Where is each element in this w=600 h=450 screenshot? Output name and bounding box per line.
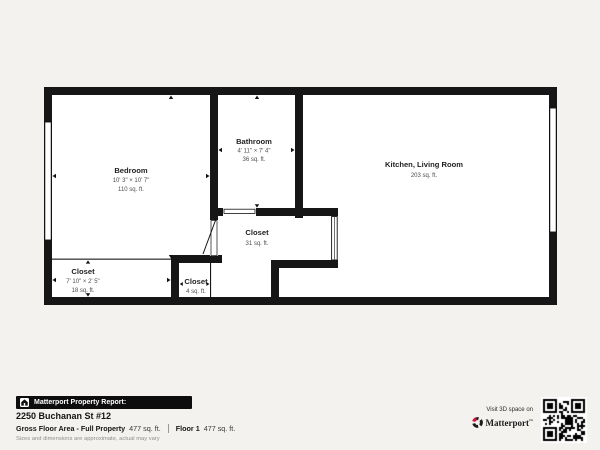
property-address: 2250 Buchanan St #12 [16, 411, 111, 421]
qr-code [541, 397, 587, 443]
report-badge: Matterport Property Report: [16, 396, 192, 409]
disclaimer-text: Sizes and dimensions are approximate, ac… [16, 436, 160, 442]
house-icon [20, 398, 29, 407]
brand-row: Matterport™ [440, 417, 533, 428]
window-left [45, 122, 51, 240]
svg-text:18 sq. ft.: 18 sq. ft. [71, 288, 94, 294]
window-right [550, 108, 556, 232]
svg-text:36 sq. ft.: 36 sq. ft. [242, 157, 265, 163]
svg-text:Closet: Closet [245, 228, 269, 237]
svg-text:7' 10" × 2' 5": 7' 10" × 2' 5" [66, 279, 99, 285]
svg-text:Closet: Closet [184, 277, 208, 286]
floor1-label: Floor 1 [176, 424, 200, 433]
svg-text:110 sq. ft.: 110 sq. ft. [118, 187, 144, 193]
stats-divider [168, 424, 169, 433]
room-label-bedroom: Bedroom 10' 3" × 10' 7" 110 sq. ft. [113, 166, 150, 193]
svg-text:Bathroom: Bathroom [236, 137, 272, 146]
visit-3d-text: Visit 3D space on [440, 407, 533, 413]
svg-text:10' 3" × 10' 7": 10' 3" × 10' 7" [113, 178, 150, 184]
svg-text:203 sq. ft.: 203 sq. ft. [411, 173, 438, 179]
svg-text:31 sq. ft.: 31 sq. ft. [245, 241, 268, 247]
brand-trademark: ™ [529, 418, 533, 423]
brand-name: Matterport [486, 418, 529, 428]
svg-text:Kitchen, Living Room: Kitchen, Living Room [385, 160, 463, 169]
svg-text:Bedroom: Bedroom [114, 166, 148, 175]
svg-text:4' 11" × 7' 4": 4' 11" × 7' 4" [238, 149, 271, 155]
gross-floor-area-label: Gross Floor Area - Full Property [16, 424, 125, 433]
svg-text:Closet: Closet [71, 267, 95, 276]
bathroom-door [224, 209, 255, 213]
svg-text:4 sq. ft.: 4 sq. ft. [186, 289, 206, 295]
floor1-value: 477 sq. ft. [204, 424, 236, 433]
property-report-page: Bedroom 10' 3" × 10' 7" 110 sq. ft. Bath… [0, 0, 600, 450]
floor-area-stats: Gross Floor Area - Full Property 477 sq.… [16, 424, 235, 433]
floor-plan: Bedroom 10' 3" × 10' 7" 110 sq. ft. Bath… [0, 0, 600, 390]
report-badge-label: Matterport Property Report: [34, 399, 126, 406]
matterport-logo [472, 417, 483, 428]
gross-floor-area-value: 477 sq. ft. [129, 424, 161, 433]
brand-wordmark: Matterport™ [486, 418, 533, 428]
